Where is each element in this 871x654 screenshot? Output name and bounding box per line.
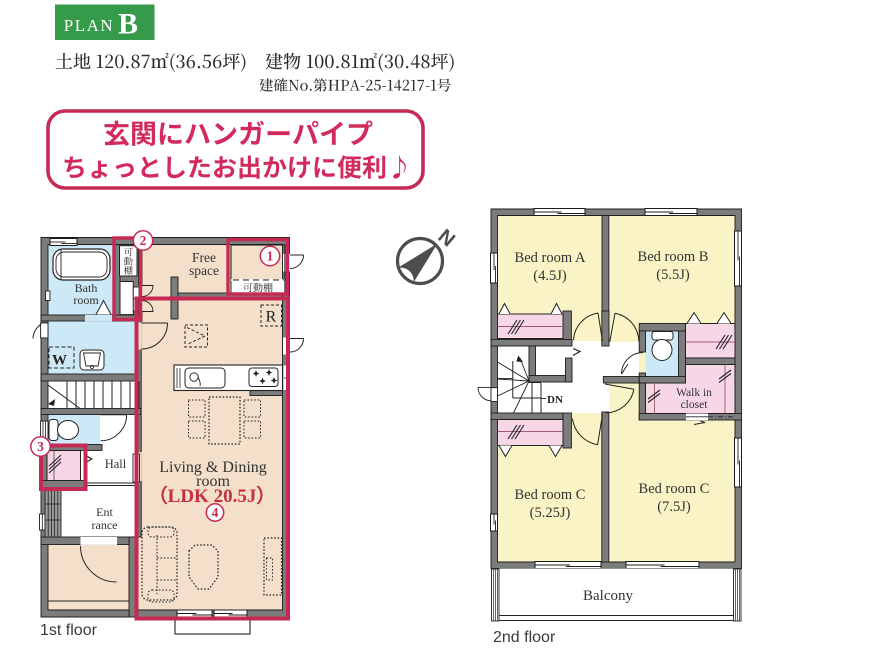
- svg-text:Bed room B: Bed room B: [638, 249, 709, 265]
- svg-text:Bed room C: Bed room C: [515, 487, 586, 503]
- svg-text:room: room: [73, 293, 99, 307]
- svg-text:(4.5J): (4.5J): [533, 268, 567, 284]
- svg-text:space: space: [189, 263, 219, 278]
- svg-text:4: 4: [212, 505, 219, 520]
- svg-text:Ent: Ent: [96, 505, 113, 519]
- svg-text:1: 1: [267, 249, 274, 264]
- svg-text:(5.5J): (5.5J): [656, 267, 690, 283]
- svg-text:W: W: [52, 353, 67, 369]
- svg-text:Balcony: Balcony: [583, 588, 633, 604]
- svg-text:B: B: [118, 8, 138, 41]
- svg-text:Walk in: Walk in: [676, 387, 712, 399]
- svg-text:DN: DN: [547, 394, 563, 406]
- svg-text:2: 2: [140, 233, 147, 248]
- svg-text:2nd floor: 2nd floor: [493, 629, 556, 646]
- svg-text:3: 3: [37, 439, 44, 454]
- svg-text:Bed room C: Bed room C: [639, 481, 710, 497]
- svg-text:1st floor: 1st floor: [40, 622, 98, 639]
- svg-text:Bed room A: Bed room A: [515, 250, 586, 266]
- svg-text:PLAN: PLAN: [64, 16, 114, 35]
- svg-text:(5.25J): (5.25J): [530, 505, 571, 521]
- svg-text:rance: rance: [92, 518, 118, 532]
- svg-text:(7.5J): (7.5J): [657, 499, 691, 515]
- svg-text:R: R: [266, 309, 277, 326]
- svg-text:Hall: Hall: [105, 457, 127, 471]
- svg-text:closet: closet: [681, 399, 709, 411]
